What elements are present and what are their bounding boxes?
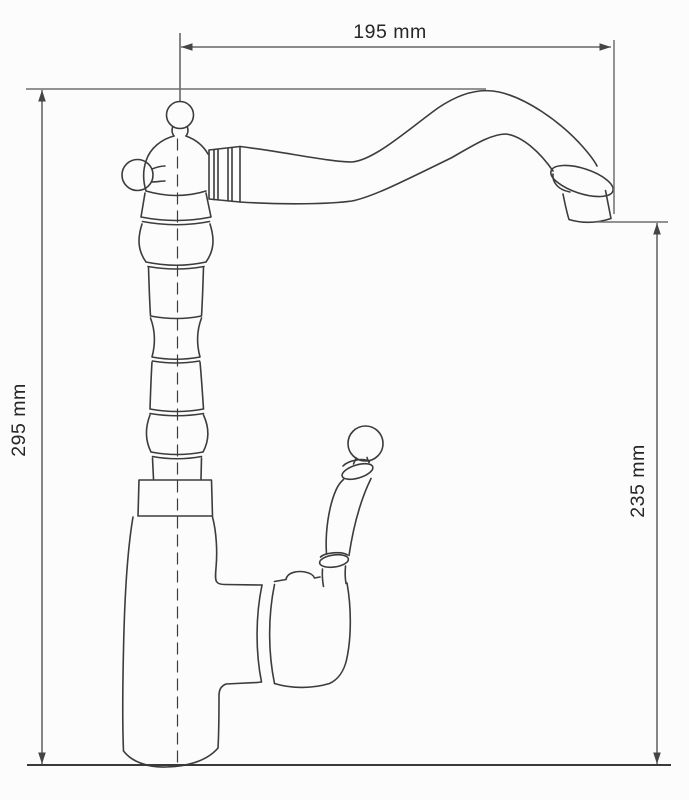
lever-handle-grip: [326, 479, 371, 556]
dimension-overall-height: [26, 89, 486, 764]
label-spout-reach: 195 mm: [353, 21, 426, 43]
swan-neck-spout: [240, 91, 597, 204]
dimension-spout-reach: [180, 33, 614, 214]
column-segment-barrel-1: [139, 224, 213, 269]
housing-band: [257, 585, 275, 684]
label-outlet-height: 235 mm: [627, 444, 649, 517]
arrowhead-down: [653, 753, 661, 765]
dimension-labels: 195 mm 295 mm 235 mm: [8, 21, 649, 518]
faucet-outline: [122, 91, 617, 767]
label-overall-height: 295 mm: [8, 383, 30, 456]
column-segment-waisted: [151, 318, 202, 363]
column-segment-straight-1: [149, 267, 204, 319]
handle-lower-neck: [322, 566, 346, 587]
ball-finial: [167, 102, 194, 129]
arrowhead-right: [600, 43, 612, 51]
arrowhead-down: [38, 753, 46, 765]
side-cross-knob: [122, 160, 153, 191]
cartridge-housing: [275, 572, 351, 688]
ribbed-coupling: [209, 147, 240, 203]
arrowhead-up: [653, 223, 661, 235]
head-collar: [141, 193, 211, 225]
valve-dome: [144, 136, 208, 196]
arrowhead-left: [181, 43, 193, 51]
lever-handle-ball: [348, 426, 383, 461]
arrowhead-up: [38, 90, 46, 102]
side-knob-neck: [152, 166, 165, 182]
technical-drawing-page: 195 mm 295 mm 235 mm: [0, 0, 689, 800]
faucet-dimension-drawing: 195 mm 295 mm 235 mm: [0, 0, 689, 800]
column-collar-block: [138, 480, 213, 516]
column-segment-straight-2: [150, 362, 204, 416]
base-body: [123, 517, 262, 767]
